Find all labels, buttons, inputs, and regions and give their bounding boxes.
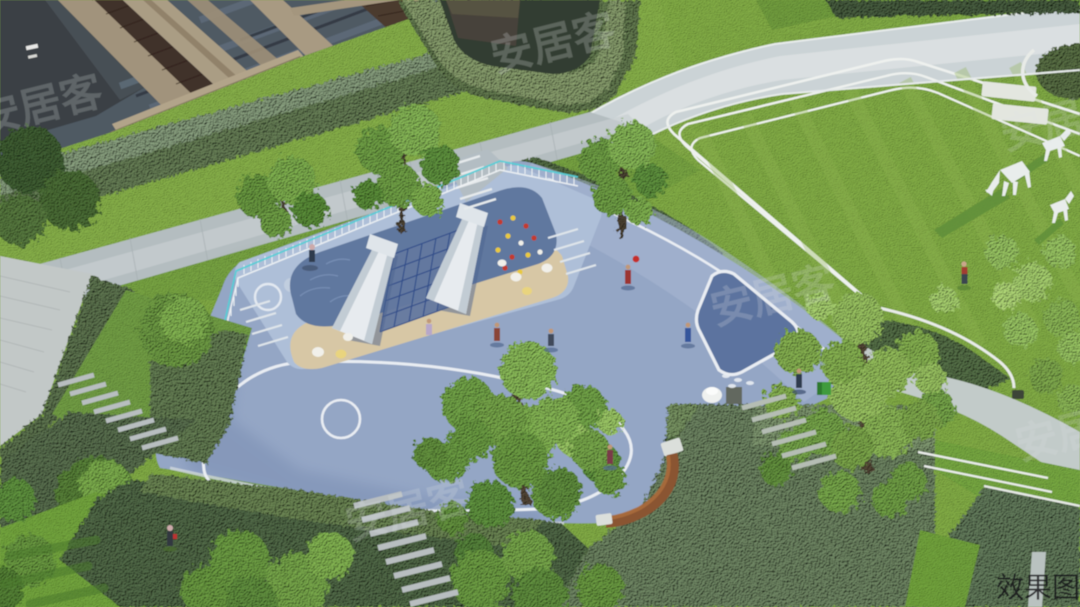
svg-text:效果图: 效果图 bbox=[996, 572, 1080, 604]
